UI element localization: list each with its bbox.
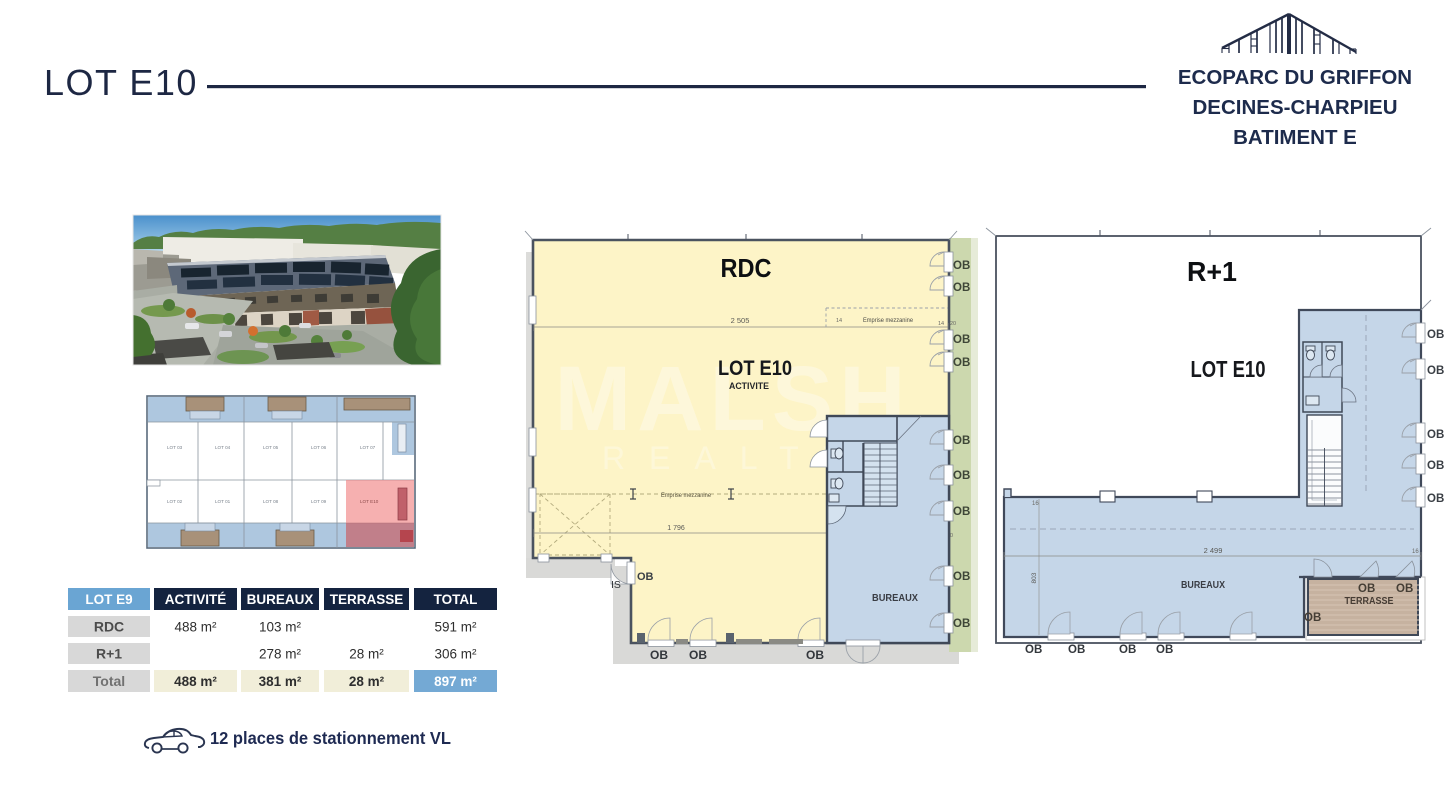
svg-text:16: 16 <box>1412 549 1419 555</box>
svg-text:12 places de stationnement VL: 12 places de stationnement VL <box>210 728 451 748</box>
svg-text:RDC: RDC <box>721 253 772 283</box>
svg-text:OB: OB <box>1427 365 1444 377</box>
svg-text:BUREAUX: BUREAUX <box>1181 579 1225 591</box>
svg-text:LOT E10: LOT E10 <box>360 499 379 504</box>
svg-text:LOT 08: LOT 08 <box>263 499 279 504</box>
svg-text:Emprise mezzanine: Emprise mezzanine <box>863 317 913 324</box>
svg-text:OB: OB <box>1025 644 1042 656</box>
svg-text:LOT E10: LOT E10 <box>44 62 198 103</box>
svg-text:Total: Total <box>93 673 125 689</box>
svg-text:LOT 03: LOT 03 <box>167 445 183 450</box>
svg-text:OB: OB <box>953 470 970 482</box>
svg-text:381 m²: 381 m² <box>259 674 302 689</box>
svg-text:278 m²: 278 m² <box>259 647 302 662</box>
svg-text:OB: OB <box>953 357 970 369</box>
svg-text:OB: OB <box>689 648 707 662</box>
svg-text:LOT 02: LOT 02 <box>167 499 183 504</box>
svg-text:20: 20 <box>950 321 956 327</box>
svg-text:OB: OB <box>953 571 970 583</box>
svg-text:306 m²: 306 m² <box>434 647 477 662</box>
svg-text:OB: OB <box>953 435 970 447</box>
svg-text:ACTIVITÉ: ACTIVITÉ <box>165 592 227 607</box>
svg-text:OB: OB <box>953 260 970 272</box>
svg-text:BATIMENT E: BATIMENT E <box>1233 126 1357 149</box>
svg-text:ACTIVITE: ACTIVITE <box>729 381 769 392</box>
svg-text:LOT 07: LOT 07 <box>360 445 376 450</box>
svg-text:14: 14 <box>836 318 842 324</box>
svg-text:2 499: 2 499 <box>1204 546 1223 555</box>
svg-text:LOT E9: LOT E9 <box>85 592 132 607</box>
svg-text:DECINES-CHARPIEU: DECINES-CHARPIEU <box>1192 96 1397 119</box>
svg-text:488 m²: 488 m² <box>174 620 217 635</box>
svg-text:LOT 01: LOT 01 <box>215 499 231 504</box>
svg-text:BUREAUX: BUREAUX <box>247 592 314 607</box>
svg-text:OB: OB <box>1068 644 1085 656</box>
svg-text:IS: IS <box>611 579 621 591</box>
svg-text:OB: OB <box>806 648 824 662</box>
svg-text:OB: OB <box>1427 429 1444 441</box>
svg-text:R+1: R+1 <box>96 646 122 662</box>
svg-text:RDC: RDC <box>94 619 124 635</box>
svg-text:OB: OB <box>953 506 970 518</box>
svg-text:OB: OB <box>1427 493 1444 505</box>
svg-text:OB: OB <box>1304 612 1321 624</box>
svg-text:803: 803 <box>1031 572 1038 583</box>
svg-text:16: 16 <box>1032 501 1039 507</box>
svg-text:591 m²: 591 m² <box>434 620 477 635</box>
svg-text:28 m²: 28 m² <box>349 647 384 662</box>
svg-text:OB: OB <box>1119 644 1136 656</box>
svg-text:LOT 04: LOT 04 <box>215 445 231 450</box>
svg-text:OB: OB <box>650 648 668 662</box>
svg-text:OB: OB <box>1427 329 1444 341</box>
svg-text:TERRASSE: TERRASSE <box>1345 595 1394 607</box>
svg-text:OB: OB <box>637 571 654 583</box>
svg-text:OB: OB <box>1358 583 1375 595</box>
svg-text:ECOPARC DU GRIFFON: ECOPARC DU GRIFFON <box>1178 66 1412 89</box>
svg-text:488 m²: 488 m² <box>174 674 217 689</box>
svg-text:TERRASSE: TERRASSE <box>330 592 404 607</box>
svg-text:1 796: 1 796 <box>667 525 685 532</box>
svg-text:OB: OB <box>1396 583 1413 595</box>
svg-text:OB: OB <box>953 618 970 630</box>
svg-text:2 505: 2 505 <box>731 316 750 325</box>
svg-text:TOTAL: TOTAL <box>434 592 478 607</box>
svg-text:Emprise mezzanine: Emprise mezzanine <box>661 492 711 499</box>
svg-text:14: 14 <box>938 321 944 327</box>
svg-text:OB: OB <box>953 334 970 346</box>
svg-text:LOT 06: LOT 06 <box>311 445 327 450</box>
svg-text:OB: OB <box>1427 460 1444 472</box>
svg-text:LOT E10: LOT E10 <box>1191 356 1266 382</box>
svg-text:OB: OB <box>953 282 970 294</box>
svg-text:LOT 05: LOT 05 <box>263 445 279 450</box>
svg-text:897 m²: 897 m² <box>434 674 477 689</box>
svg-text:OB: OB <box>1156 644 1173 656</box>
svg-text:R+1: R+1 <box>1187 256 1237 287</box>
svg-text:LOT E10: LOT E10 <box>718 357 792 380</box>
svg-text:BUREAUX: BUREAUX <box>872 592 918 604</box>
svg-text:103 m²: 103 m² <box>259 620 302 635</box>
svg-text:LOT 09: LOT 09 <box>311 499 327 504</box>
svg-text:28 m²: 28 m² <box>349 674 385 689</box>
